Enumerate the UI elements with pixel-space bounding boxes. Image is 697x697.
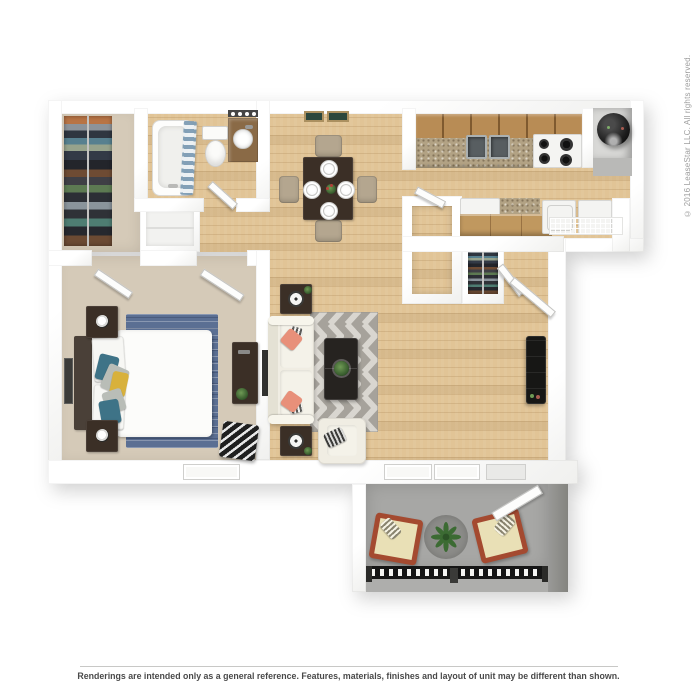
living-window (434, 464, 480, 480)
patio-left-wall (352, 484, 366, 592)
wall-art-frame (304, 111, 324, 122)
copyright-text: © 2016 LeaseStar LLC. All rights reserve… (683, 8, 692, 218)
patio-chair-pillow (379, 517, 402, 541)
closet-rod (87, 116, 89, 246)
wall-bedroom-top-left (48, 250, 92, 266)
table-lamp (96, 429, 109, 442)
tub-faucet (168, 184, 178, 188)
footer-divider (80, 666, 618, 667)
exterior-wall-step (560, 238, 644, 252)
water-heater (597, 113, 630, 146)
apartment-floor-plan (0, 0, 697, 697)
patio-right-wall (548, 484, 568, 592)
table-lamp (288, 433, 304, 449)
wall-closet-bathroom (134, 108, 148, 212)
bed-duvet (116, 330, 212, 437)
wire-shelf (550, 218, 622, 234)
bed-headboard (74, 336, 92, 430)
bedroom-wall-art (64, 358, 73, 404)
dining-chair-bottom (315, 220, 342, 242)
wall-kitchen-bottom (402, 236, 564, 252)
vanity-lights (231, 112, 235, 116)
railing-post (542, 566, 548, 582)
patio-plant (430, 521, 462, 553)
stove-burner (539, 153, 550, 164)
exterior-wall-left (48, 100, 62, 484)
exterior-wall-right-living (548, 238, 566, 484)
wall-bathroom-dining (256, 100, 270, 212)
table-lamp (96, 315, 109, 328)
living-window (384, 464, 432, 480)
railing-post (450, 568, 458, 583)
wall-bedroom-top-mid (140, 250, 197, 266)
stove-burner (560, 154, 572, 166)
breakfast-bar (460, 214, 552, 236)
dining-chair-left (279, 176, 299, 203)
railing-post (366, 566, 372, 582)
patio-chair-left (368, 512, 423, 566)
bedroom-window (183, 464, 240, 480)
closet-rod (482, 248, 484, 294)
stove-burner (539, 139, 549, 149)
coffee-table-plant (334, 361, 349, 376)
chevron-pouf (219, 421, 260, 462)
dinner-plate (337, 181, 355, 199)
dining-chair-top (315, 135, 342, 157)
linen-closet-shelf (146, 227, 194, 229)
wall-art-frame (327, 111, 349, 122)
dinner-plate (320, 202, 338, 220)
water-heater-closet-floor (593, 158, 632, 176)
water-heater-indicator-lights (607, 126, 610, 129)
desk-item (238, 350, 250, 354)
tv-console (526, 336, 546, 404)
desk-plant (236, 388, 248, 400)
centerpiece-flowers (330, 184, 333, 187)
kitchen-sink-basin (466, 135, 487, 159)
dinner-plate (303, 181, 321, 199)
tv-console-decor (530, 394, 534, 398)
sofa-armrest (268, 316, 314, 325)
vanity-sink (233, 129, 253, 149)
toilet-tank (202, 126, 228, 140)
patio-door-threshold (486, 464, 526, 480)
wall-bathroom-bottom-right (236, 198, 270, 212)
side-table-plant (304, 286, 312, 294)
stove (533, 134, 582, 168)
sink-faucet (245, 125, 253, 129)
disclaimer-text: Renderings are intended only as a genera… (0, 671, 697, 681)
wall-dining-kitchen-stub (402, 108, 416, 170)
exterior-wall-right-kitchen (630, 100, 644, 252)
dining-chair-right (357, 176, 377, 203)
table-lamp (288, 291, 304, 307)
kitchen-sink-basin (489, 135, 510, 159)
dinner-plate (320, 160, 338, 178)
sofa-armrest (268, 415, 314, 424)
stove-burner (560, 138, 573, 151)
floor-plan-screenshot: Renderings are intended only as a genera… (0, 0, 697, 697)
toilet-bowl (205, 140, 226, 167)
sofa-back (268, 316, 278, 424)
side-table-plant (304, 447, 312, 455)
wall-bathroom-bottom-left (134, 198, 204, 212)
